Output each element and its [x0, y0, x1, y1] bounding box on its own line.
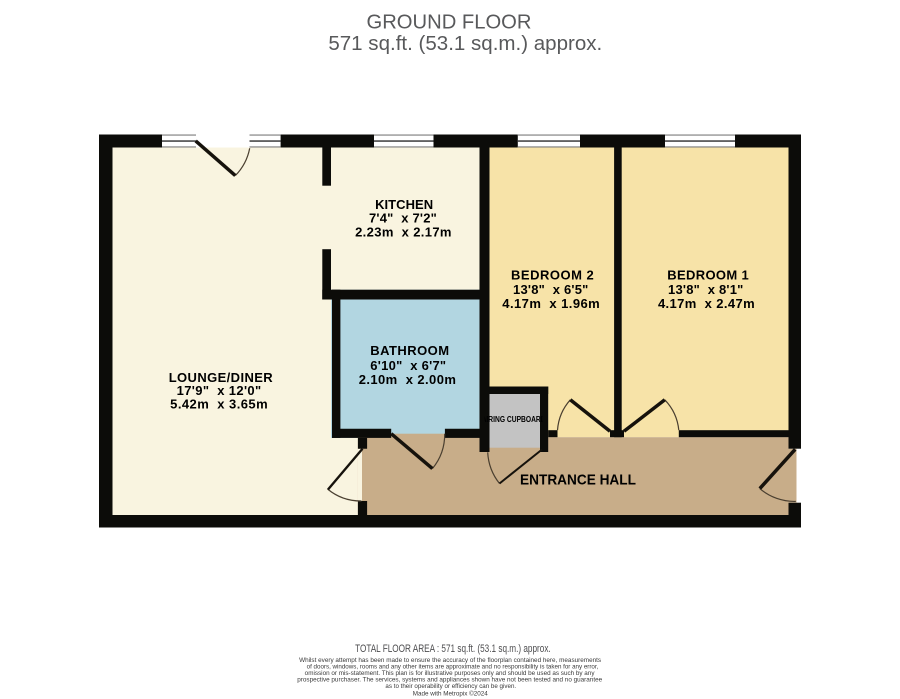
svg-text:4.17m x 1.96m: 4.17m x 1.96m	[502, 296, 599, 311]
svg-text:GROUND FLOOR: GROUND FLOOR	[367, 10, 532, 33]
svg-text:2.10m x 2.00m: 2.10m x 2.00m	[359, 372, 456, 387]
svg-text:TOTAL FLOOR AREA : 571 sq.ft.: TOTAL FLOOR AREA : 571 sq.ft. (53.1 sq.m…	[355, 643, 551, 655]
svg-text:571 sq.ft. (53.1 sq.m.) approx: 571 sq.ft. (53.1 sq.m.) approx.	[328, 32, 602, 55]
svg-text:AIRING CUPBOARD: AIRING CUPBOARD	[482, 415, 546, 424]
svg-text:BEDROOM 1: BEDROOM 1	[667, 267, 748, 282]
svg-text:6'10" x 6'7": 6'10" x 6'7"	[370, 358, 446, 373]
svg-text:13'8" x 6'5": 13'8" x 6'5"	[513, 282, 588, 297]
svg-text:ENTRANCE HALL: ENTRANCE HALL	[520, 472, 636, 488]
svg-text:BATHROOM: BATHROOM	[370, 343, 449, 358]
svg-text:as to their operability or eff: as to their operability or efficiency ca…	[385, 683, 516, 690]
svg-text:7'4" x 7'2": 7'4" x 7'2"	[369, 211, 437, 226]
svg-text:4.17m x 2.47m: 4.17m x 2.47m	[658, 296, 755, 311]
svg-text:Made with Metropix ©2024: Made with Metropix ©2024	[413, 690, 489, 697]
svg-text:13'8" x 8'1": 13'8" x 8'1"	[668, 282, 743, 297]
svg-text:5.42m x 3.65m: 5.42m x 3.65m	[170, 397, 268, 412]
svg-text:2.23m x 2.17m: 2.23m x 2.17m	[355, 225, 451, 240]
svg-text:BEDROOM 2: BEDROOM 2	[511, 267, 594, 282]
